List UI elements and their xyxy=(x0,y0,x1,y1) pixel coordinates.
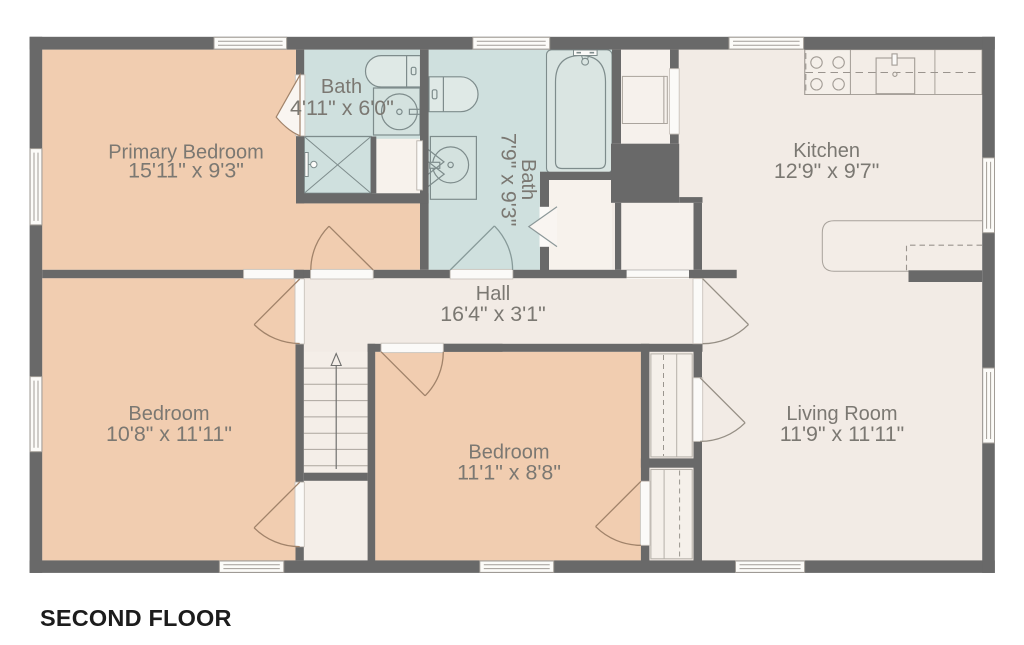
svg-text:4'11" x 6'0": 4'11" x 6'0" xyxy=(290,96,394,120)
svg-text:11'1" x 8'8": 11'1" x 8'8" xyxy=(457,461,561,485)
svg-text:11'9" x 11'11": 11'9" x 11'11" xyxy=(780,422,904,446)
svg-text:SECOND FLOOR: SECOND FLOOR xyxy=(40,605,232,631)
svg-text:Bath: Bath xyxy=(321,76,362,98)
svg-text:16'4" x 3'1": 16'4" x 3'1" xyxy=(440,302,545,326)
svg-text:15'11" x 9'3": 15'11" x 9'3" xyxy=(128,159,244,183)
svg-text:10'8" x 11'11": 10'8" x 11'11" xyxy=(106,422,232,446)
svg-text:7'9" x 9'3": 7'9" x 9'3" xyxy=(496,133,520,227)
svg-text:12'9" x 9'7": 12'9" x 9'7" xyxy=(774,159,879,183)
